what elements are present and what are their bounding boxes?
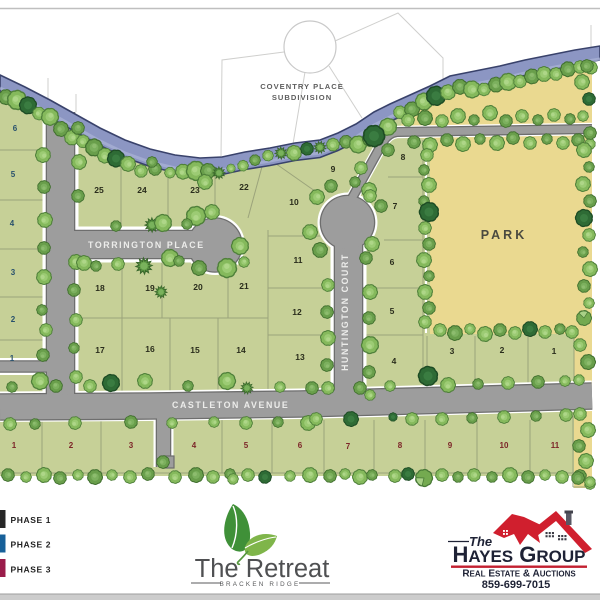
svg-text:11: 11 — [294, 255, 303, 265]
svg-text:8: 8 — [401, 152, 406, 162]
svg-text:SUBDIVISION: SUBDIVISION — [272, 93, 332, 102]
svg-text:2: 2 — [11, 315, 16, 324]
svg-text:5: 5 — [244, 441, 249, 450]
svg-text:16: 16 — [145, 344, 155, 354]
svg-text:4: 4 — [192, 441, 197, 450]
svg-text:21: 21 — [239, 281, 249, 291]
svg-text:24: 24 — [137, 185, 147, 195]
svg-text:3: 3 — [129, 441, 134, 450]
svg-text:19: 19 — [145, 283, 155, 293]
svg-text:14: 14 — [236, 345, 246, 355]
svg-text:20: 20 — [193, 282, 203, 292]
svg-text:1: 1 — [10, 354, 15, 363]
svg-text:TORRINGTON PLACE: TORRINGTON PLACE — [88, 240, 205, 250]
svg-text:12: 12 — [292, 307, 302, 317]
svg-text:4: 4 — [10, 219, 15, 228]
svg-text:7: 7 — [393, 201, 398, 211]
svg-text:PHASE 3: PHASE 3 — [11, 565, 52, 575]
svg-text:PARK: PARK — [481, 228, 528, 242]
svg-text:HUNTINGTON COURT: HUNTINGTON COURT — [340, 253, 350, 371]
svg-text:6: 6 — [390, 257, 395, 267]
svg-text:CASTLETON AVENUE: CASTLETON AVENUE — [172, 400, 289, 410]
svg-text:8: 8 — [398, 441, 403, 450]
svg-text:5: 5 — [390, 306, 395, 316]
svg-text:PHASE 2: PHASE 2 — [11, 540, 52, 550]
svg-text:3: 3 — [11, 268, 16, 277]
svg-text:7: 7 — [346, 442, 351, 451]
svg-text:10: 10 — [289, 197, 299, 207]
svg-text:10: 10 — [500, 441, 509, 450]
svg-text:6: 6 — [13, 124, 18, 133]
svg-text:The Retreat: The Retreat — [195, 555, 330, 583]
svg-text:859-699-7015: 859-699-7015 — [482, 579, 551, 591]
svg-text:REAL ESTATE & AUCTIONS: REAL ESTATE & AUCTIONS — [462, 569, 576, 580]
svg-text:BRACKEN RIDGE: BRACKEN RIDGE — [220, 581, 301, 588]
svg-text:4: 4 — [392, 356, 397, 366]
svg-text:15: 15 — [190, 345, 200, 355]
svg-text:18: 18 — [95, 283, 105, 293]
svg-text:6: 6 — [298, 441, 303, 450]
svg-text:9: 9 — [448, 441, 453, 450]
svg-text:PHASE 1: PHASE 1 — [11, 515, 52, 525]
svg-text:5: 5 — [11, 170, 16, 179]
svg-text:25: 25 — [94, 185, 104, 195]
svg-text:17: 17 — [95, 345, 105, 355]
svg-text:22: 22 — [239, 182, 249, 192]
svg-text:13: 13 — [295, 352, 305, 362]
svg-text:COVENTRY PLACE: COVENTRY PLACE — [260, 82, 344, 91]
svg-text:1: 1 — [552, 346, 557, 356]
svg-text:1: 1 — [12, 441, 17, 450]
svg-text:11: 11 — [551, 441, 560, 450]
svg-text:3: 3 — [450, 346, 455, 356]
svg-text:2: 2 — [500, 345, 505, 355]
svg-text:9: 9 — [331, 164, 336, 174]
svg-text:2: 2 — [69, 441, 74, 450]
svg-text:23: 23 — [190, 185, 200, 195]
